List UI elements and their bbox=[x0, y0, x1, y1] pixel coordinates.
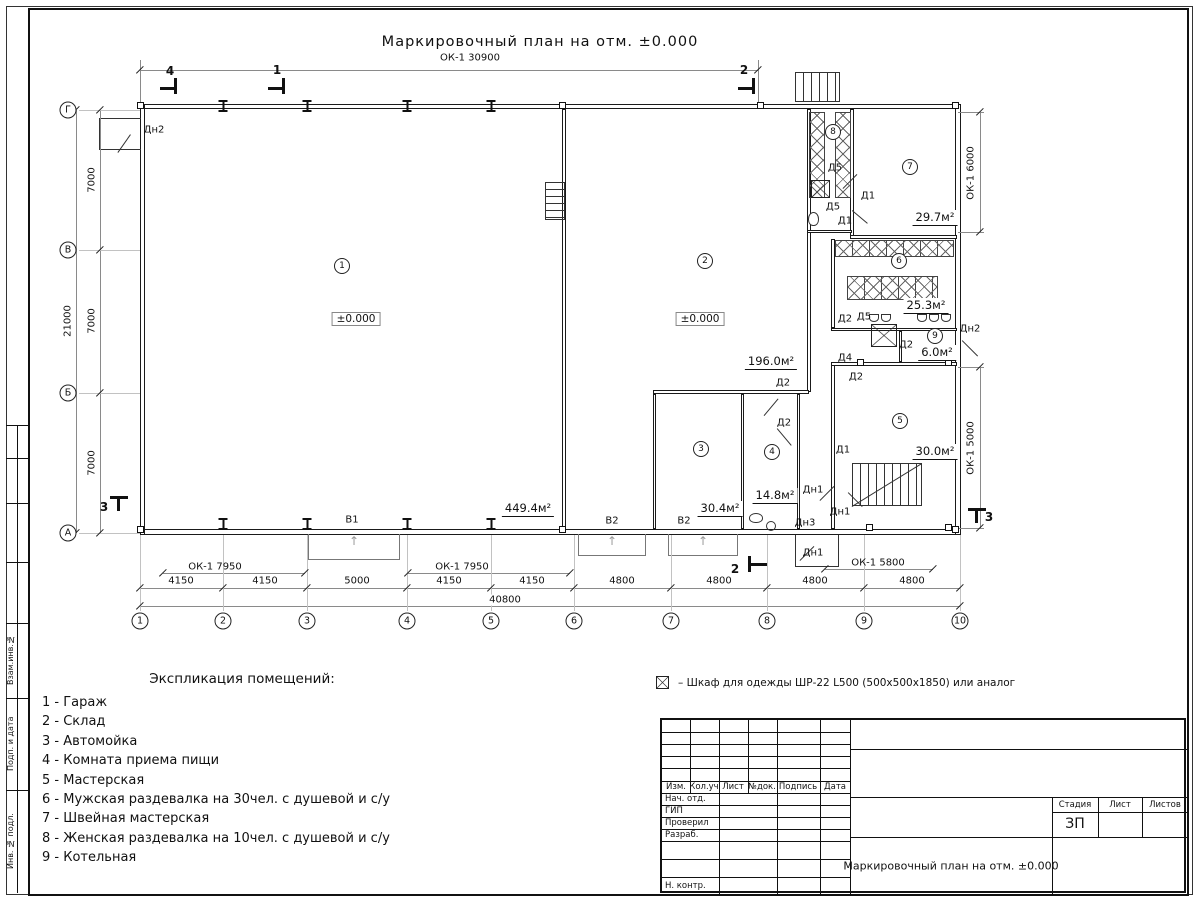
room-area-label: 30.4м² bbox=[698, 501, 743, 517]
titleblock-line bbox=[662, 859, 850, 860]
room-area-label: 196.0м² bbox=[745, 354, 797, 370]
section-mark bbox=[174, 78, 177, 94]
room-number-bubble: 6 bbox=[891, 253, 907, 269]
door-tag: Дн3 bbox=[795, 518, 816, 529]
grid-axis-line bbox=[140, 535, 141, 611]
dimension-line bbox=[825, 569, 933, 570]
grid-axis-line bbox=[79, 393, 140, 394]
door-tag: Дн1 bbox=[830, 507, 851, 518]
frame-strip-line bbox=[6, 458, 28, 459]
dimension-value: 4150 bbox=[252, 576, 277, 587]
dimension-value: 4800 bbox=[899, 576, 924, 587]
dimension-line bbox=[76, 110, 77, 533]
tb-row-gip: ГИП bbox=[665, 806, 683, 816]
dimension-line bbox=[140, 606, 960, 607]
room-area-label: 29.7м² bbox=[913, 210, 958, 226]
legend-item: 5 - Мастерская bbox=[42, 771, 472, 790]
gate-label: В2 bbox=[677, 516, 690, 527]
legend-item: 9 - Котельная bbox=[42, 848, 472, 867]
tb-listov-col: Листов bbox=[1149, 800, 1181, 810]
grid-axis-line bbox=[307, 535, 308, 611]
washbasin-icon bbox=[929, 314, 939, 322]
washbasin-icon bbox=[917, 314, 927, 322]
room-legend: Экспликация помещений: 1 - Гараж 2 - Скл… bbox=[42, 671, 472, 868]
tb-stage-value: ЗП bbox=[1065, 816, 1085, 832]
wall bbox=[831, 362, 835, 529]
section-number: 2 bbox=[731, 562, 739, 576]
legend-item: 8 - Женская раздевалка на 10чел. с душев… bbox=[42, 829, 472, 848]
grid-axis-line bbox=[864, 535, 865, 611]
grid-axis-line bbox=[79, 250, 140, 251]
dimension-value: 4800 bbox=[609, 576, 634, 587]
note-text: – Шкаф для одежды ШР-22 L500 (500x500x18… bbox=[678, 677, 1015, 689]
dimension-line bbox=[980, 112, 981, 232]
wall bbox=[850, 235, 957, 239]
frame-strip-line bbox=[6, 623, 28, 624]
section-mark bbox=[751, 563, 767, 566]
grid-column-bubble: 1 bbox=[132, 613, 149, 630]
door-tag: Дн1 bbox=[803, 485, 824, 496]
grid-row-bubble: Г bbox=[60, 102, 77, 119]
grid-axis-line bbox=[671, 535, 672, 611]
grid-column-bubble: 6 bbox=[566, 613, 583, 630]
floor-level-label: ±0.000 bbox=[676, 312, 725, 326]
door-leaf bbox=[763, 398, 778, 416]
titleblock-line bbox=[850, 749, 1188, 750]
titleblock-line bbox=[662, 756, 850, 757]
section-mark bbox=[282, 78, 285, 94]
room-area-label: 6.0м² bbox=[918, 345, 956, 361]
room-number-bubble: 4 bbox=[764, 444, 780, 460]
door-tag: Д5 bbox=[828, 163, 842, 174]
shower-cabin bbox=[811, 180, 830, 198]
titleblock-line bbox=[719, 720, 720, 895]
column-post bbox=[757, 102, 764, 109]
exterior-steps bbox=[795, 72, 840, 102]
grid-column-bubble: 7 bbox=[663, 613, 680, 630]
tb-col-list: Лист bbox=[722, 782, 744, 792]
titleblock-line bbox=[1052, 812, 1188, 813]
legend-item: 6 - Мужская раздевалка на 30чел. с душев… bbox=[42, 790, 472, 809]
door-tag: Д1 bbox=[861, 191, 875, 202]
column-symbol bbox=[303, 518, 312, 530]
column-symbol bbox=[219, 518, 228, 530]
gate-label: В2 bbox=[605, 516, 618, 527]
legend-heading: Экспликация помещений: bbox=[42, 671, 442, 687]
grid-axis-line bbox=[79, 110, 140, 111]
section-mark bbox=[268, 87, 284, 90]
wall bbox=[807, 230, 852, 233]
section-number: 3 bbox=[100, 500, 108, 514]
door-tag: Д2 bbox=[899, 340, 913, 351]
column-post bbox=[952, 102, 959, 109]
room-number-bubble: 2 bbox=[697, 253, 713, 269]
gate-label: В1 bbox=[345, 515, 358, 526]
frame-strip-line bbox=[6, 562, 28, 563]
dimension-value: 4150 bbox=[436, 576, 461, 587]
door-tag: Д2 bbox=[838, 314, 852, 325]
washbasin-icon bbox=[881, 314, 891, 322]
grid-column-bubble: 4 bbox=[399, 613, 416, 630]
dimension-value: 7000 bbox=[87, 167, 98, 192]
dimension-line bbox=[140, 70, 758, 71]
titleblock-line bbox=[820, 720, 821, 895]
section-mark bbox=[738, 87, 754, 90]
gate-v2: ↑ bbox=[578, 534, 646, 556]
wall bbox=[140, 104, 960, 109]
section-number: 2 bbox=[740, 63, 748, 77]
legend-item: 7 - Швейная мастерская bbox=[42, 809, 472, 828]
sink-icon bbox=[766, 521, 776, 531]
section-number: 1 bbox=[273, 63, 281, 77]
window-dimension: ОК-1 5800 bbox=[851, 558, 905, 569]
grid-row-bubble: А bbox=[60, 525, 77, 542]
dimension-total: 21000 bbox=[63, 305, 74, 337]
drawing-sheet: Взам.инв.№ Подп. и дата Инв. № подл. Мар… bbox=[0, 0, 1200, 900]
grid-axis-line bbox=[960, 535, 961, 611]
tb-col-ndok: №док. bbox=[748, 782, 776, 792]
column-post bbox=[137, 526, 144, 533]
titleblock-line bbox=[662, 744, 850, 745]
wall bbox=[562, 109, 566, 529]
column-symbol bbox=[487, 518, 496, 530]
column-symbol bbox=[403, 518, 412, 530]
dimension-line bbox=[980, 367, 981, 528]
legend-item: 4 - Комната приема пищи bbox=[42, 751, 472, 770]
room-number-bubble: 9 bbox=[927, 328, 943, 344]
section-mark bbox=[975, 511, 978, 523]
room-number-bubble: 8 bbox=[825, 124, 841, 140]
door-tag: Д2 bbox=[776, 378, 790, 389]
dimension-value: 7000 bbox=[87, 450, 98, 475]
door-leaf bbox=[962, 340, 979, 357]
frame-strip-line bbox=[6, 698, 28, 699]
tb-row-nkontr: Н. контр. bbox=[665, 881, 706, 891]
tb-row-razrab: Разраб. bbox=[665, 830, 698, 840]
entrance-canopy bbox=[99, 118, 141, 150]
titleblock-line bbox=[662, 877, 850, 878]
wall bbox=[653, 390, 809, 394]
wall bbox=[797, 394, 800, 529]
room-number-bubble: 1 bbox=[334, 258, 350, 274]
title-block: Изм. Кол.уч Лист №док. Подпись Дата Нач.… bbox=[660, 718, 1186, 893]
grid-column-bubble: 2 bbox=[215, 613, 232, 630]
titleblock-line bbox=[662, 768, 850, 769]
room-area-label: 25.3м² bbox=[904, 298, 949, 314]
shower-cabin bbox=[871, 324, 897, 347]
stairs bbox=[545, 182, 565, 220]
tb-doc-title: Маркировочный план на отм. ±0.000 bbox=[843, 860, 1058, 873]
tb-row-nachotd: Нач. отд. bbox=[665, 794, 706, 804]
grid-axis-line bbox=[79, 533, 140, 534]
dimension-value: 4150 bbox=[168, 576, 193, 587]
grid-column-bubble: 10 bbox=[952, 613, 969, 630]
column-symbol bbox=[487, 100, 496, 112]
toilet-icon bbox=[749, 513, 763, 523]
titleblock-line bbox=[777, 720, 778, 895]
grid-axis-line bbox=[223, 535, 224, 611]
grid-column-bubble: 8 bbox=[759, 613, 776, 630]
window-dimension: ОК-1 6000 bbox=[966, 146, 977, 200]
tb-col-koluch: Кол.уч bbox=[689, 782, 718, 792]
grid-column-bubble: 5 bbox=[483, 613, 500, 630]
legend-item: 2 - Склад bbox=[42, 712, 472, 731]
floor-level-label: ±0.000 bbox=[332, 312, 381, 326]
door-tag: Д2 bbox=[849, 372, 863, 383]
wardrobe-note: – Шкаф для одежды ШР-22 L500 (500x500x18… bbox=[656, 676, 1015, 689]
wall bbox=[653, 394, 656, 529]
gate-v2: ↑ bbox=[668, 534, 738, 556]
door-tag: Дн2 bbox=[960, 324, 981, 335]
room-number-bubble: 7 bbox=[902, 159, 918, 175]
dimension-line bbox=[408, 573, 570, 574]
section-number: 4 bbox=[166, 64, 174, 78]
titleblock-line bbox=[662, 805, 850, 806]
dimension-value: 4150 bbox=[519, 576, 544, 587]
frame-strip-line bbox=[6, 425, 28, 426]
room-area-label: 14.8м² bbox=[753, 488, 798, 504]
door-tag: Дн2 bbox=[144, 125, 165, 136]
legend-item: 3 - Автомойка bbox=[42, 732, 472, 751]
crossed-square-icon bbox=[656, 676, 669, 689]
column-symbol bbox=[403, 100, 412, 112]
section-mark bbox=[160, 87, 176, 90]
column-post bbox=[866, 524, 873, 531]
toilet-icon bbox=[808, 212, 819, 226]
grid-row-bubble: В bbox=[60, 242, 77, 259]
grid-axis-line bbox=[574, 535, 575, 611]
dimension-line bbox=[100, 110, 101, 533]
dimension-tick bbox=[566, 569, 574, 577]
dimension-line bbox=[140, 588, 960, 589]
titleblock-line bbox=[850, 837, 1188, 838]
dimension-line bbox=[163, 573, 305, 574]
washbasin-icon bbox=[941, 314, 951, 322]
section-mark bbox=[752, 78, 755, 94]
dimension-value: 4800 bbox=[706, 576, 731, 587]
window-dimension: ОК-1 7950 bbox=[188, 562, 242, 573]
titleblock-line bbox=[662, 732, 850, 733]
door-tag: Д2 bbox=[777, 418, 791, 429]
frame-strip-line bbox=[6, 790, 28, 791]
tb-col-izm: Изм. bbox=[666, 782, 686, 792]
gate-v1: ↑ bbox=[308, 534, 400, 560]
door-tag: Д1 bbox=[836, 445, 850, 456]
tb-stage-col: Стадия bbox=[1059, 800, 1092, 810]
frame-strip-line bbox=[6, 503, 28, 504]
window-dimension: ОК-1 5000 bbox=[966, 421, 977, 475]
tb-col-podpis: Подпись bbox=[779, 782, 817, 792]
top-dimension: ОК-1 30900 bbox=[440, 53, 500, 64]
titleblock-line bbox=[1098, 797, 1099, 837]
door-tag: Д4 bbox=[838, 353, 852, 364]
dimension-total: 40800 bbox=[486, 595, 524, 606]
dimension-value: 5000 bbox=[344, 576, 369, 587]
door-tag: Дн1 bbox=[803, 548, 824, 559]
dimension-value: 7000 bbox=[87, 308, 98, 333]
wardrobe-row bbox=[847, 276, 938, 300]
column-post bbox=[857, 359, 864, 366]
wall bbox=[140, 104, 145, 535]
wall bbox=[955, 104, 961, 535]
titleblock-line bbox=[1142, 797, 1143, 837]
dimension-value: 4800 bbox=[802, 576, 827, 587]
column-symbol bbox=[303, 100, 312, 112]
door-tag: Д1 bbox=[838, 216, 852, 227]
section-mark bbox=[117, 499, 120, 511]
section-number: 3 bbox=[985, 510, 993, 524]
column-post bbox=[137, 102, 144, 109]
room-area-label: 449.4м² bbox=[502, 501, 554, 517]
door-tag: Д5 bbox=[857, 312, 871, 323]
grid-column-bubble: 9 bbox=[856, 613, 873, 630]
grid-column-bubble: 3 bbox=[299, 613, 316, 630]
tb-row-proveril: Проверил bbox=[665, 818, 709, 828]
column-post bbox=[559, 526, 566, 533]
titleblock-line bbox=[850, 797, 1188, 798]
column-post bbox=[945, 524, 952, 531]
dimension-tick bbox=[929, 565, 937, 573]
legend-item: 1 - Гараж bbox=[42, 693, 472, 712]
room-number-bubble: 3 bbox=[693, 441, 709, 457]
grid-row-bubble: Б bbox=[60, 385, 77, 402]
door-leaf bbox=[776, 428, 791, 446]
door-tag: Д5 bbox=[826, 202, 840, 213]
column-post bbox=[952, 526, 959, 533]
tb-list-col: Лист bbox=[1109, 800, 1131, 810]
grid-axis-line bbox=[767, 535, 768, 611]
room-number-bubble: 5 bbox=[892, 413, 908, 429]
room-area-label: 30.0м² bbox=[913, 444, 958, 460]
column-post bbox=[559, 102, 566, 109]
column-symbol bbox=[219, 100, 228, 112]
tb-col-data: Дата bbox=[824, 782, 846, 792]
titleblock-line bbox=[662, 841, 850, 842]
window-dimension: ОК-1 7950 bbox=[435, 562, 489, 573]
